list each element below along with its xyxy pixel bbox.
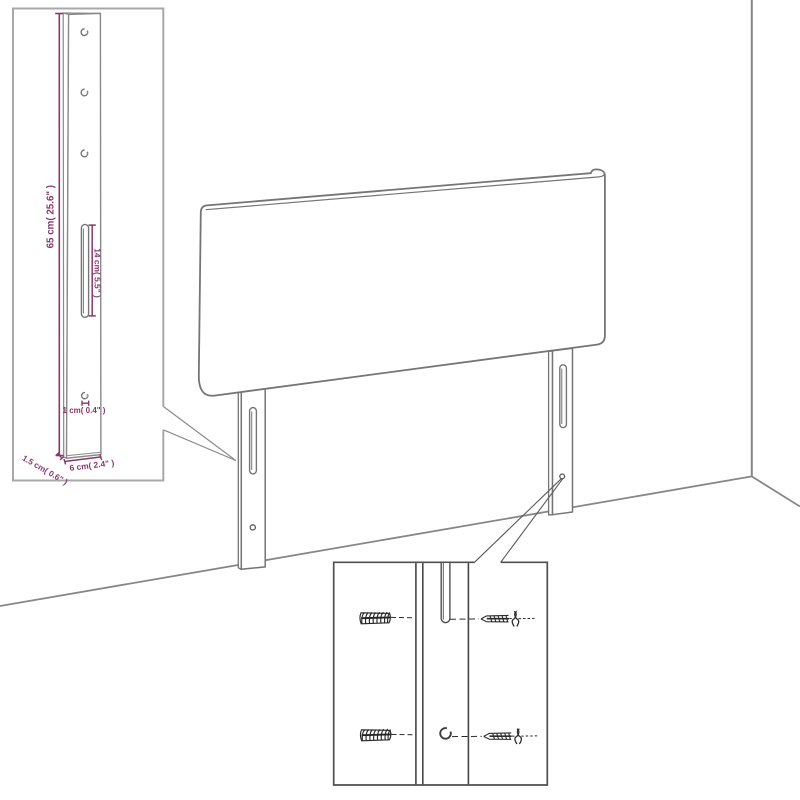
svg-text:14 cm( 5.5" ): 14 cm( 5.5" ) [92,248,102,298]
svg-text:65 cm( 25.6" ): 65 cm( 25.6" ) [45,185,56,248]
svg-text:1 cm( 0.4" ): 1 cm( 0.4" ) [63,406,106,415]
